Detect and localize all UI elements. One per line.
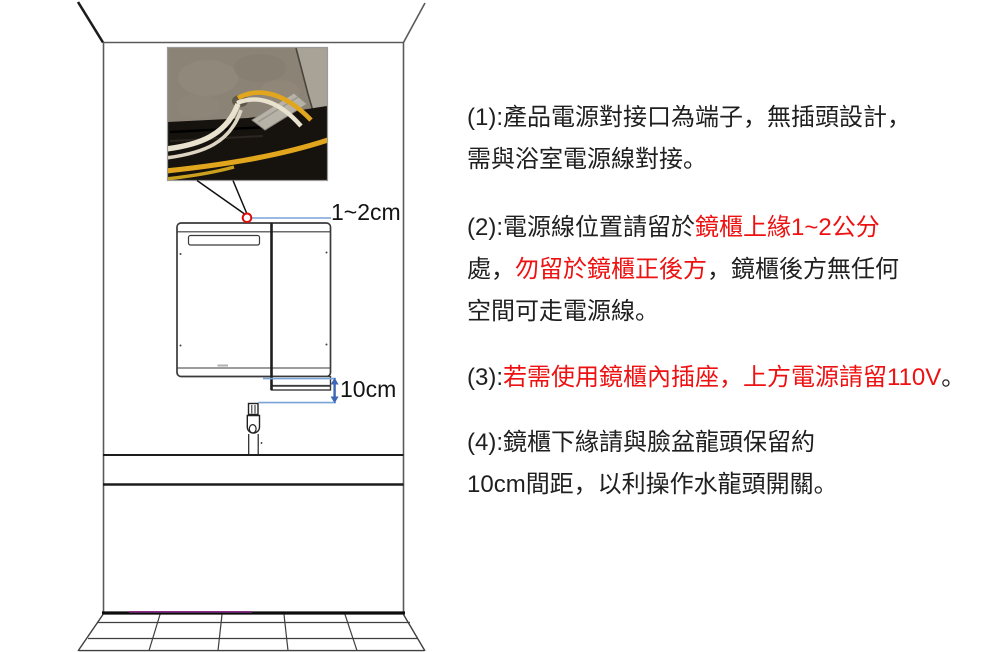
instruction-3: (3):若需使用鏡櫃內插座，上方電源請留110V。 bbox=[467, 357, 1000, 399]
power-line-position-marker bbox=[243, 214, 252, 223]
instruction-4-prefix: (4): bbox=[467, 429, 503, 456]
instruction-4: (4):鏡櫃下緣請與臉盆龍頭保留約 10cm間距，以利操作水龍頭開關。 bbox=[467, 422, 1000, 506]
faucet-handle bbox=[249, 404, 259, 415]
installation-instruction-page: 1~2cm 10cm (1):產品電源對接口為端子，無插頭設計， 需與浴室電源線… bbox=[0, 0, 1000, 652]
ceiling-line-right bbox=[404, 3, 426, 43]
instruction-1-prefix: (1): bbox=[467, 104, 503, 131]
instruction-1: (1):產品電源對接口為端子，無插頭設計， 需與浴室電源線對接。 bbox=[467, 97, 1000, 181]
instruction-2-text-red: 鏡櫃上緣1~2公分 bbox=[695, 214, 880, 241]
floor-tiles bbox=[78, 615, 425, 652]
instruction-2: (2):電源線位置請留於鏡櫃上緣1~2公分 處，勿留於鏡櫃正後方，鏡櫃後方無任何… bbox=[467, 207, 1000, 333]
instruction-1-text: 產品電源對接口為端子，無插頭設計， 需與浴室電源線對接。 bbox=[467, 104, 911, 173]
cabinet-outline bbox=[177, 223, 331, 377]
mirror-cabinet bbox=[177, 223, 331, 390]
bathroom-diagram bbox=[0, 0, 440, 652]
instruction-2-text-black: 處， bbox=[467, 256, 515, 283]
instruction-4-text: 鏡櫃下緣請與臉盆龍頭保留約 10cm間距，以利操作水龍頭開關。 bbox=[467, 429, 838, 498]
faucet bbox=[247, 404, 262, 455]
photo-callout-lines bbox=[197, 181, 247, 216]
wiring-photo bbox=[166, 48, 328, 181]
dim-label-top-gap: 1~2cm bbox=[331, 200, 401, 225]
instruction-2-text-red: 勿留於鏡櫃正後方 bbox=[515, 256, 707, 283]
instruction-3-text-red: 若需使用鏡櫃內插座，上方電源請留110V bbox=[503, 364, 941, 391]
ceiling-line-left bbox=[78, 2, 103, 43]
dim-label-faucet-gap: 10cm bbox=[340, 377, 396, 402]
cabinet-light-slot bbox=[189, 236, 260, 246]
instruction-2-prefix: (2): bbox=[467, 214, 503, 241]
instruction-2-text-black: 電源線位置請留於 bbox=[503, 214, 695, 241]
instruction-3-text-black: 。 bbox=[941, 364, 965, 391]
instruction-3-prefix: (3): bbox=[467, 364, 503, 391]
countertop bbox=[103, 455, 404, 485]
